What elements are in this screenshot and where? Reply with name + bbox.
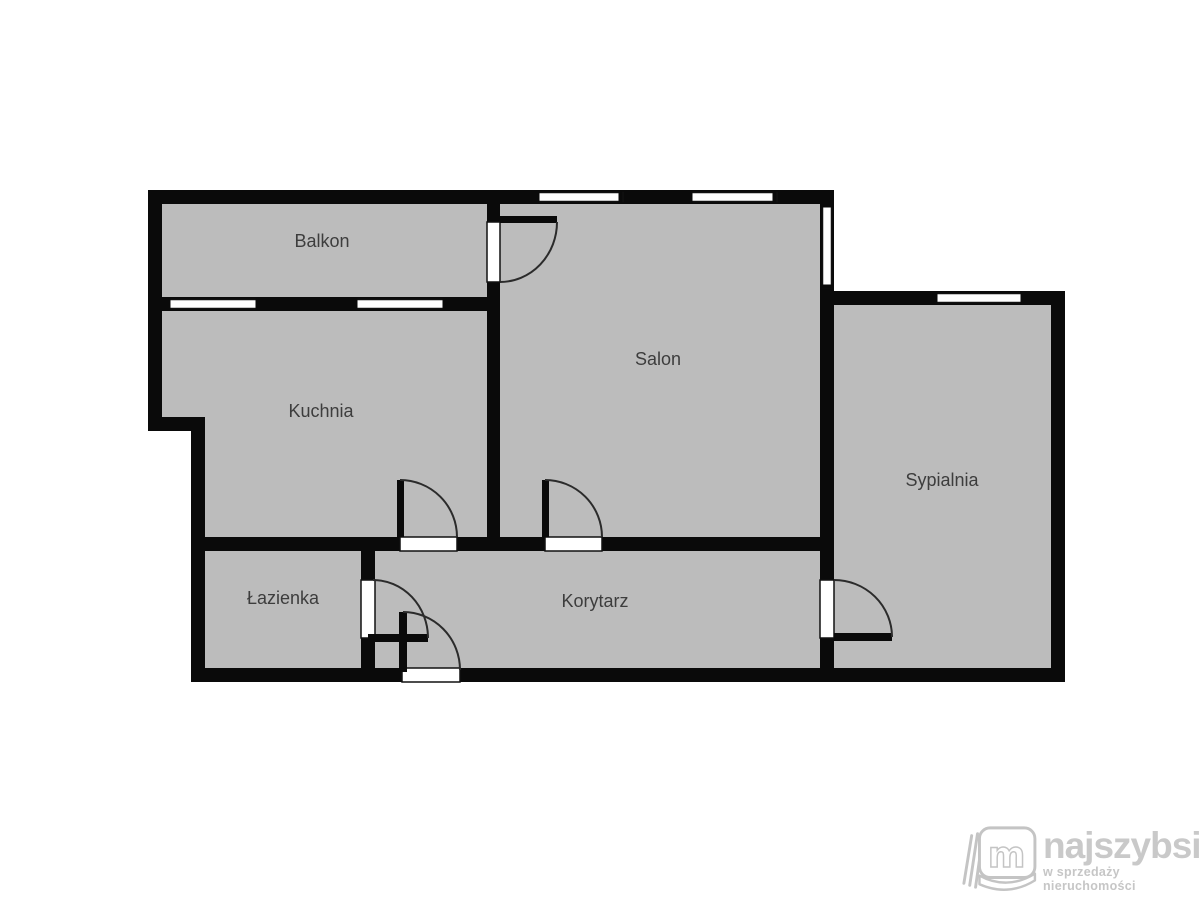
room-label-korytarz: Korytarz	[561, 591, 628, 611]
logo-letter-m: m	[988, 835, 1026, 876]
brand-name: najszybsi	[1043, 829, 1200, 862]
wall-mid-horizontal	[191, 537, 834, 551]
room-label-sypialnia: Sypialnia	[905, 470, 979, 490]
window-kuchnia-left	[167, 298, 260, 311]
floor-plan-page: Balkon Kuchnia Salon Sypialnia Łazienka …	[0, 0, 1200, 900]
open-book-m-icon: m	[952, 823, 1040, 895]
wall-sypialnia-right	[1051, 291, 1065, 682]
window-salon-right	[689, 191, 778, 204]
window-salon-side	[821, 204, 834, 289]
room-label-lazienka: Łazienka	[247, 588, 320, 608]
floor-plan-drawing: Balkon Kuchnia Salon Sypialnia Łazienka …	[0, 0, 1200, 900]
window-sypialnia	[934, 292, 1025, 305]
room-label-kuchnia: Kuchnia	[288, 401, 354, 421]
window-salon-left	[536, 191, 624, 204]
window-kuchnia-right	[354, 298, 447, 311]
brand-tagline: w sprzedaży nieruchomości	[1043, 865, 1200, 893]
brand-watermark: m najszybsi w sprzedaży nieruchomości	[952, 823, 1196, 895]
room-label-balkon: Balkon	[294, 231, 349, 251]
room-label-salon: Salon	[635, 349, 681, 369]
watermark-text: najszybsi w sprzedaży nieruchomości	[1043, 829, 1200, 893]
wall-bottom	[191, 668, 1065, 682]
